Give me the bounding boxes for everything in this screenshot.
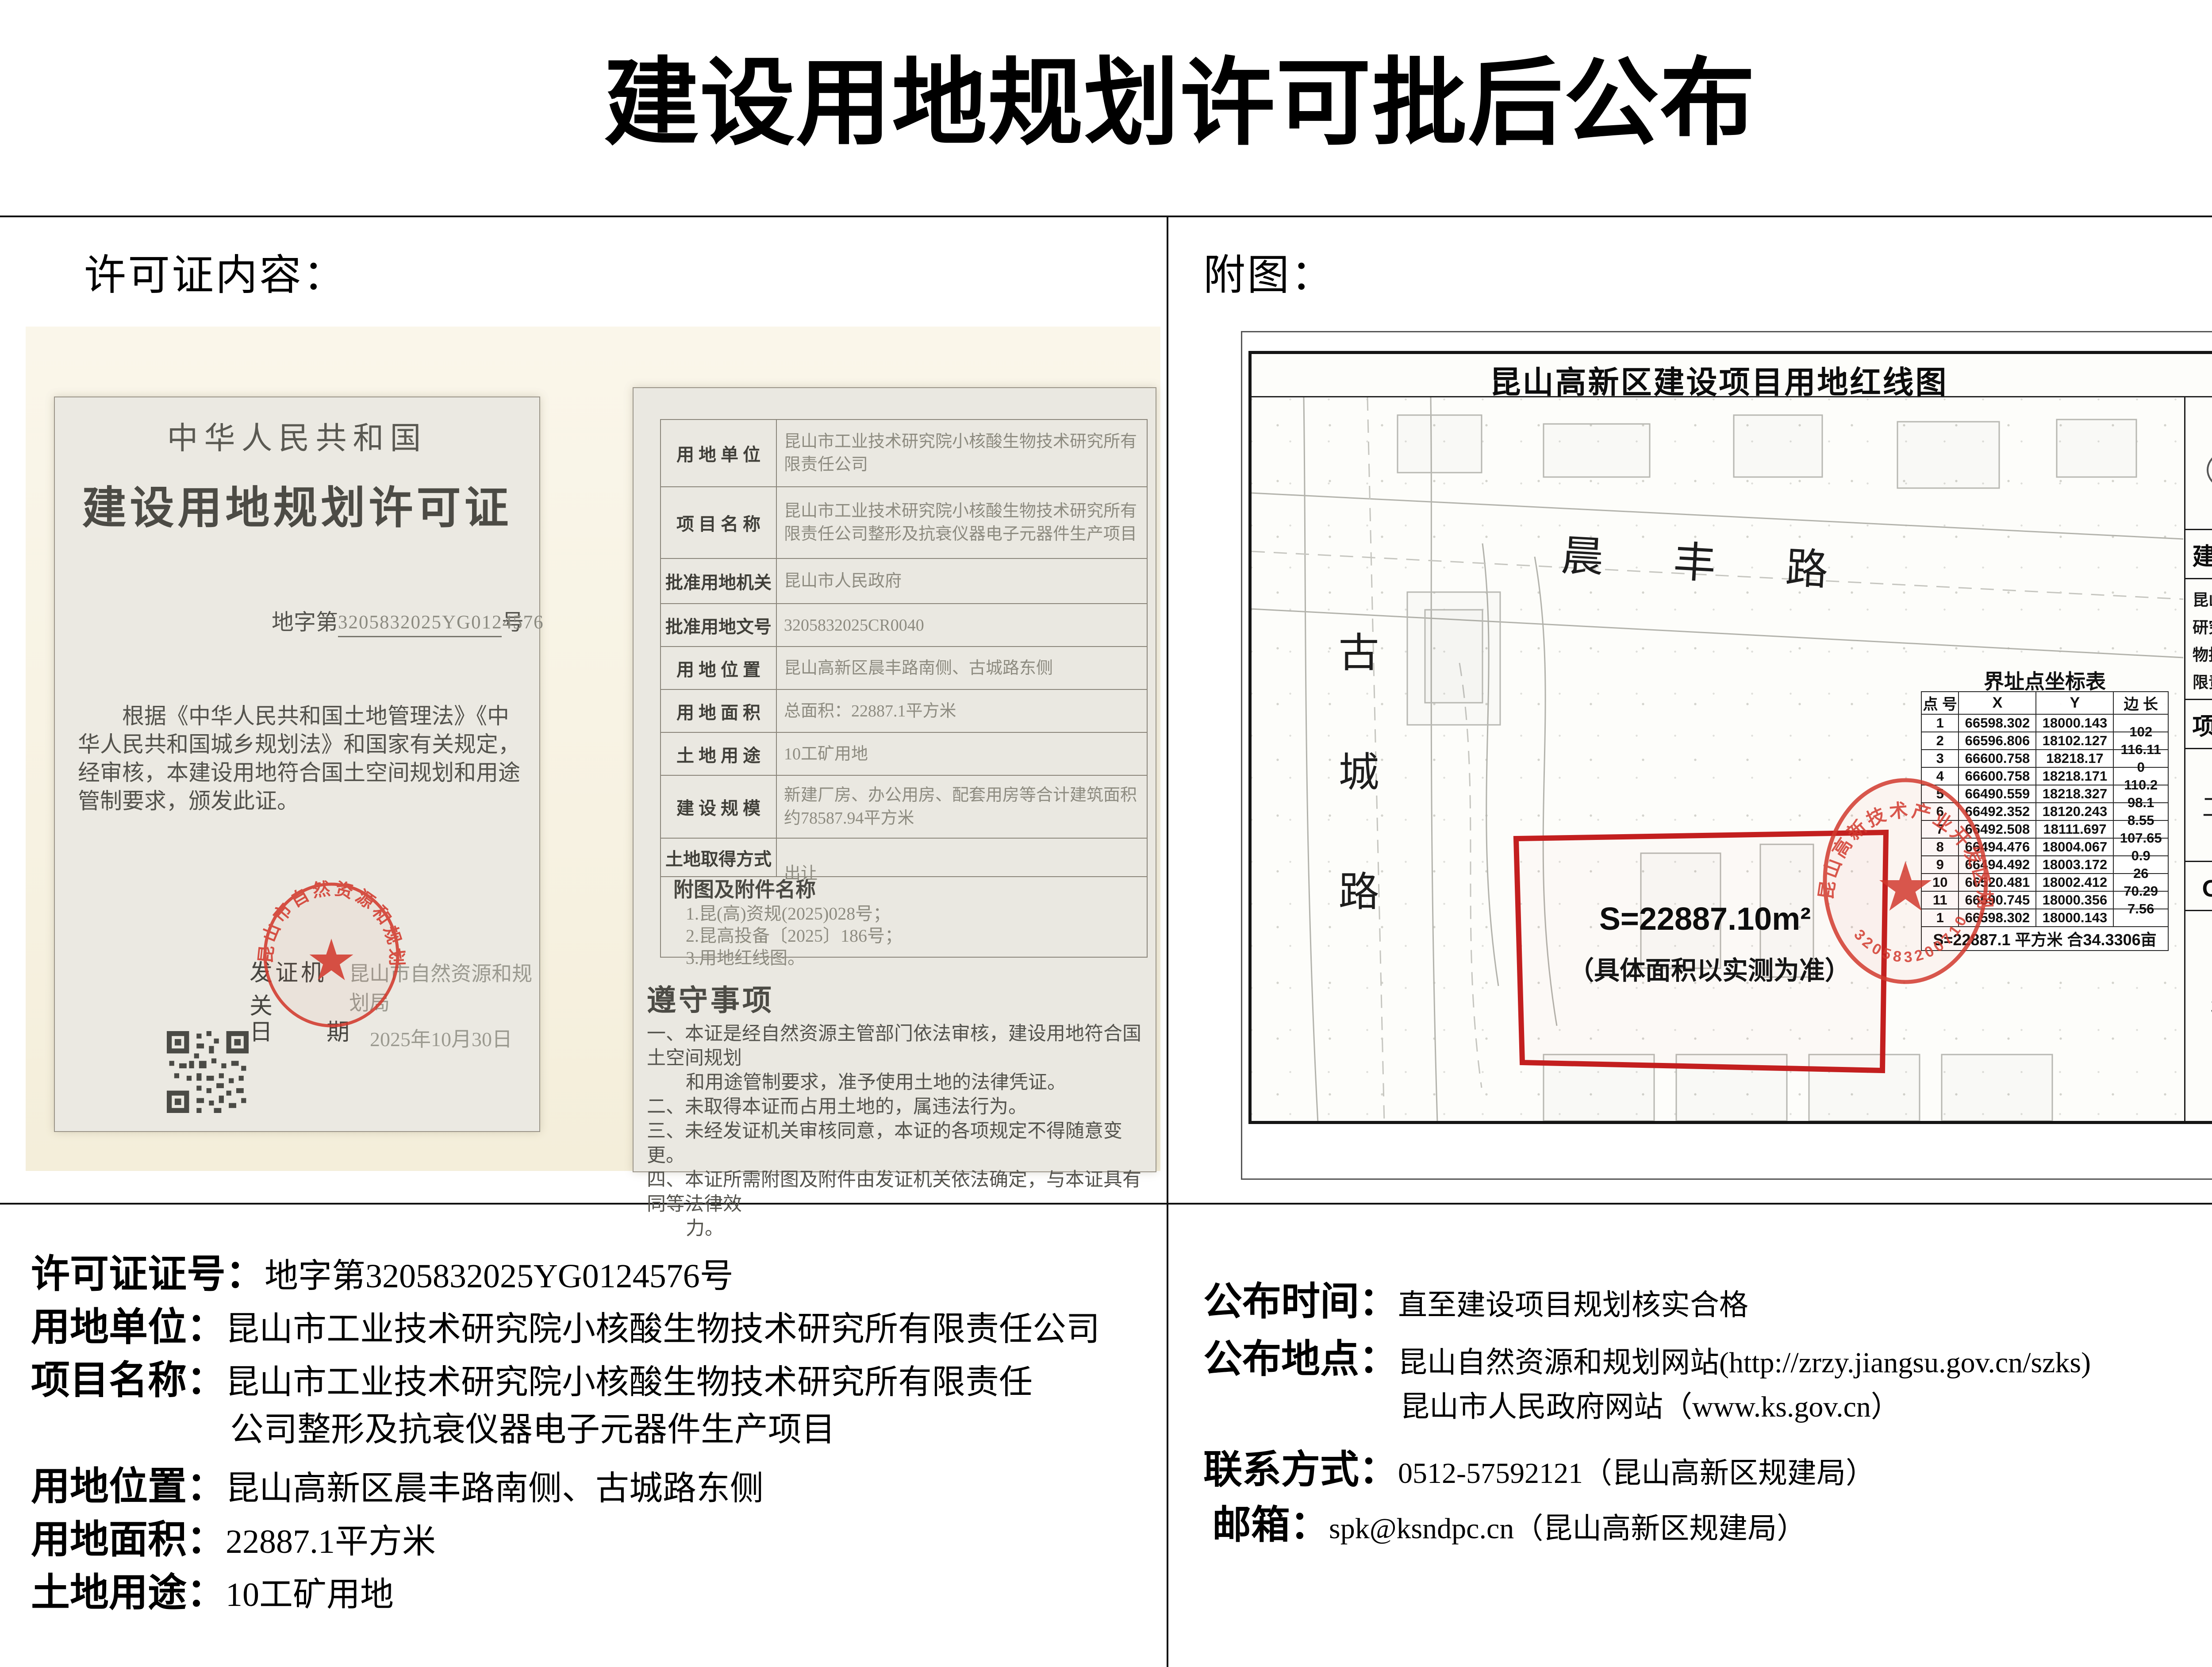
- sidebar-owner-header: 建 设 单 位: [2185, 530, 2212, 579]
- note-line: 四、本证所需附图及附件由发证机关依法确定，与本证具有同等法律效: [647, 1168, 1147, 1217]
- map-title: 昆山高新区建设项目用地红线图: [1252, 358, 2186, 402]
- attachments-section: 附图及附件名称 1.昆(高)资规(2025)028号； 2.昆高投备〔2025〕…: [660, 868, 1148, 958]
- detail-land-use: 土地用途：10工矿用地: [31, 1561, 394, 1617]
- note-line: 一、本证是经自然资源主管部门依法审核，建设用地符合国土空间规划: [647, 1022, 1147, 1070]
- detail-publish-place-cont: 昆山市人民政府网站（www.ks.gov.cn）: [1400, 1383, 1900, 1425]
- map-sidebar: N 建 设 单 位 昆山市工业技术研究院小核酸生物技术研究所有限责任公司 项 目…: [2184, 397, 2212, 1121]
- permit-body-line: 华人民共和国城乡规划法》和国家有关规定，: [78, 730, 524, 758]
- divider-horizontal-top: [0, 216, 2212, 217]
- sidebar-oa-header: OA 编 号: [2185, 862, 2212, 911]
- notes-list: 一、本证是经自然资源主管部门依法审核，建设用地符合国土空间规划 和用途管制要求，…: [647, 1022, 1147, 1241]
- sidebar-project-header: 项 目 名 称: [2185, 700, 2212, 749]
- permit-body-line: 根据《中华人民共和国土地管理法》《中: [78, 702, 524, 730]
- compass-cell: N: [2185, 397, 2212, 530]
- attachments-list: 1.昆(高)资规(2025)028号； 2.昆高投备〔2025〕186号； 3.…: [686, 903, 902, 969]
- permit-cover-page: 中华人民共和国 建设用地规划许可证 地字第 3205832025YG012457…: [54, 397, 540, 1132]
- detail-publish-time: 公布时间：直至建设项目规划核实合格: [1203, 1270, 1748, 1326]
- form-row: 建 设 规 模新建厂房、办公用房、配套用房等合计建筑面积约78587.94平方米: [661, 776, 1147, 839]
- north-compass-icon: N: [2200, 418, 2212, 506]
- detail-project-name-cont: 公司整形及抗衰仪器电子元器件生产项目: [230, 1402, 835, 1451]
- left-section-title: 许可证内容：: [84, 241, 347, 302]
- permit-number-line: 地字第 3205832025YG0124576 号: [272, 604, 524, 636]
- permit-body: 根据《中华人民共和国土地管理法》《中 华人民共和国城乡规划法》和国家有关规定， …: [78, 702, 524, 815]
- detail-project-name: 项目名称：昆山市工业技术研究院小核酸生物技术研究所有限责任: [31, 1349, 1033, 1405]
- page: 建设用地规划许可批后公布 许可证内容： 附图： 中华人民共和国 建设用地规划许可…: [0, 0, 2212, 1667]
- detail-area: 用地面积：22887.1平方米: [31, 1508, 436, 1564]
- detail-land-user: 用地单位：昆山市工业技术研究院小核酸生物技术研究所有限责任公司: [31, 1296, 1100, 1352]
- permit-table-page: 用 地 单 位昆山市工业技术研究院小核酸生物技术研究所有限责任公司 项 目 名 …: [633, 387, 1156, 1172]
- map-drawing-area: 古城路 晨丰路 S=22887.10m² （具体面积以实测为准） 界址点坐标表 …: [1252, 397, 2183, 1121]
- note-line: 三、未经发证机关审核同意，本证的各项规定不得随意变更。: [647, 1119, 1147, 1168]
- redline-map: 昆山高新区建设项目用地红线图: [1241, 331, 2212, 1180]
- form-row: 用 地 面 积总面积：22887.1平方米: [661, 690, 1147, 733]
- detail-location: 用地位置：昆山高新区晨丰路南侧、古城路东侧: [31, 1455, 764, 1511]
- permit-body-line: 经审核，本建设用地符合国土空间规划和用途: [78, 758, 524, 787]
- permit-form-table: 用 地 单 位昆山市工业技术研究院小核酸生物技术研究所有限责任公司 项 目 名 …: [660, 419, 1148, 877]
- form-row: 土 地 用 途10工矿用地: [661, 733, 1147, 776]
- sidebar-project-value: 工业产房: [2185, 749, 2212, 862]
- permit-country: 中华人民共和国: [55, 413, 539, 458]
- attachment-item: 3.用地红线图。: [686, 947, 902, 969]
- form-row: 用 地 单 位昆山市工业技术研究院小核酸生物技术研究所有限责任公司: [661, 420, 1147, 487]
- permit-number: 3205832025YG0124576: [338, 612, 502, 637]
- issuer-seal-icon: 昆山市自然资源和规划局: [256, 873, 407, 1032]
- divider-vertical: [1167, 216, 1168, 1667]
- right-section-title: 附图：: [1203, 241, 1335, 302]
- notes-title: 遵守事项: [647, 977, 774, 1019]
- note-line: 力。: [647, 1217, 1147, 1241]
- attachments-label: 附图及附件名称: [673, 874, 816, 903]
- coord-table-title: 界址点坐标表: [1921, 666, 2169, 695]
- coord-row: 166598.30218000.143102: [1921, 714, 2168, 732]
- qr-code-icon: [165, 1031, 251, 1113]
- planning-bureau-seal-icon: 昆山高新技术产业开发区规划建设局 3205832007102: [1813, 773, 1998, 994]
- permit-cert-title: 建设用地规划许可证: [55, 472, 539, 536]
- detail-email: 邮箱：spk@ksndpc.cn（昆山高新区规建局）: [1212, 1494, 1806, 1550]
- permit-number-prefix: 地字第: [272, 604, 338, 636]
- note-line: 二、未取得本证而占用土地的，属违法行为。: [647, 1095, 1147, 1119]
- detail-cert-no: 许可证证号：地字第3205832025YG0124576号: [31, 1243, 733, 1299]
- form-row: 批准用地文号3205832025CR0040: [661, 604, 1147, 647]
- map-frame: 昆山高新区建设项目用地红线图: [1248, 351, 2212, 1124]
- note-line: 和用途管制要求，准予使用土地的法律凭证。: [647, 1070, 1147, 1095]
- permit-photo: 中华人民共和国 建设用地规划许可证 地字第 3205832025YG012457…: [26, 327, 1160, 1171]
- detail-contact: 联系方式：0512-57592121（昆山高新区规建局）: [1203, 1438, 1875, 1494]
- sidebar-owner-value: 昆山市工业技术研究院小核酸生物技术研究所有限责任公司: [2185, 579, 2212, 700]
- page-title: 建设用地规划许可批后公布: [0, 26, 2212, 163]
- coord-header-row: 点 号 X Y 边 长: [1921, 692, 2168, 714]
- form-row: 用 地 位 置昆山高新区晨丰路南侧、古城路东侧: [661, 647, 1147, 690]
- detail-publish-place: 公布地点：昆山自然资源和规划网站(http://zrzy.jiangsu.gov…: [1203, 1328, 2091, 1384]
- form-row: 项 目 名 称昆山市工业技术研究院小核酸生物技术研究所有限责任公司整形及抗衰仪器…: [661, 487, 1147, 559]
- sidebar-oa-value: 391151: [2185, 911, 2212, 1102]
- form-row: 批准用地机关昆山市人民政府: [661, 559, 1147, 604]
- attachment-item: 2.昆高投备〔2025〕186号；: [686, 925, 902, 947]
- permit-body-line: 管制要求，颁发此证。: [78, 787, 524, 815]
- attachment-item: 1.昆(高)资规(2025)028号；: [686, 903, 902, 925]
